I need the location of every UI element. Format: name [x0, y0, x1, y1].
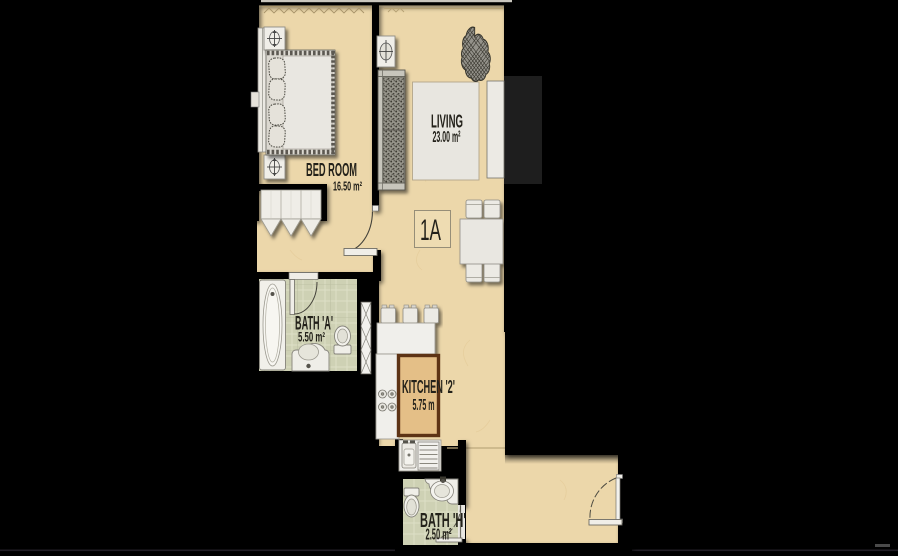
svg-text:5.75 m: 5.75 m [413, 397, 435, 414]
svg-text:BED ROOM: BED ROOM [306, 160, 357, 180]
svg-text:16.50 m²: 16.50 m² [333, 180, 362, 194]
svg-text:2.50 m²: 2.50 m² [426, 527, 452, 544]
svg-text:5.50 m²: 5.50 m² [298, 329, 325, 345]
svg-text:1A: 1A [420, 214, 441, 247]
svg-text:23.00 m²: 23.00 m² [433, 129, 461, 146]
svg-text:KITCHEN '2': KITCHEN '2' [402, 377, 455, 397]
